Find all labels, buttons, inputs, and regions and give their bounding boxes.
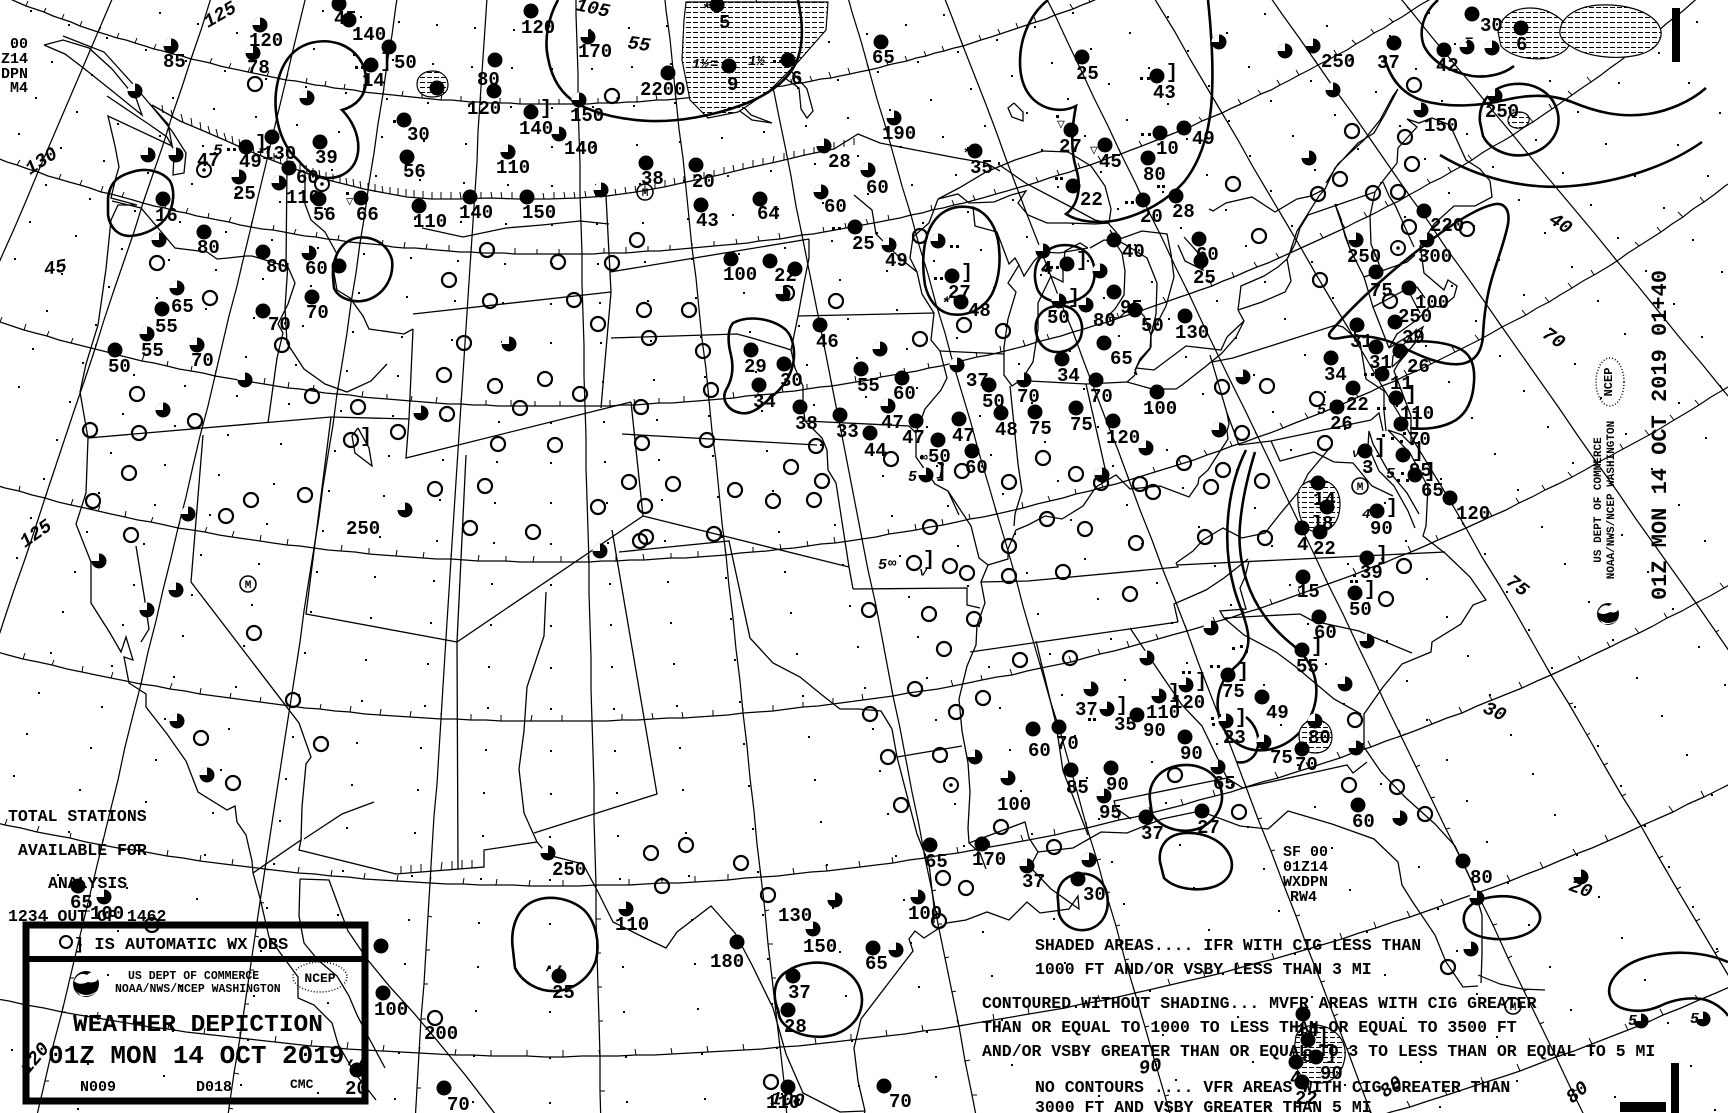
svg-text:20: 20 bbox=[692, 171, 715, 193]
svg-text:48: 48 bbox=[995, 419, 1018, 441]
svg-text:01Z MON 14 OCT 2019 01+40: 01Z MON 14 OCT 2019 01+40 bbox=[1648, 270, 1673, 600]
svg-text:70: 70 bbox=[191, 350, 214, 372]
svg-text:5: 5 bbox=[719, 12, 730, 34]
svg-text:60: 60 bbox=[824, 196, 847, 218]
svg-text:▽: ▽ bbox=[1057, 117, 1065, 132]
svg-text:70: 70 bbox=[1017, 386, 1040, 408]
svg-text:56: 56 bbox=[313, 204, 336, 226]
svg-text:M: M bbox=[245, 580, 252, 592]
svg-text:250: 250 bbox=[1321, 51, 1355, 73]
svg-text:50: 50 bbox=[108, 356, 131, 378]
svg-text:46: 46 bbox=[816, 331, 839, 353]
svg-text:90: 90 bbox=[1370, 518, 1393, 540]
svg-text:01Z MON 14 OCT 2019: 01Z MON 14 OCT 2019 bbox=[48, 1041, 344, 1071]
svg-text:65: 65 bbox=[865, 953, 888, 975]
svg-text:64: 64 bbox=[757, 203, 780, 225]
svg-text:=: = bbox=[710, 57, 718, 73]
svg-text:75: 75 bbox=[1029, 418, 1052, 440]
svg-text:60: 60 bbox=[965, 457, 988, 479]
svg-text:]: ] bbox=[1195, 671, 1207, 694]
svg-text:5: 5 bbox=[1317, 402, 1326, 419]
svg-text:55: 55 bbox=[1296, 656, 1319, 678]
svg-text:9: 9 bbox=[727, 74, 738, 96]
svg-text:170: 170 bbox=[578, 41, 612, 63]
svg-text:35: 35 bbox=[970, 157, 993, 179]
svg-text:10: 10 bbox=[1156, 138, 1179, 160]
svg-text:75: 75 bbox=[1222, 681, 1245, 703]
svg-text:38: 38 bbox=[641, 168, 664, 190]
svg-text:60: 60 bbox=[893, 383, 916, 405]
svg-text:5: 5 bbox=[213, 142, 223, 160]
svg-text:44: 44 bbox=[864, 440, 887, 462]
svg-text:190: 190 bbox=[882, 123, 916, 145]
svg-text:1½: 1½ bbox=[748, 54, 765, 70]
svg-text:]: ] bbox=[1386, 497, 1398, 520]
svg-text:23: 23 bbox=[1223, 727, 1246, 749]
svg-text:5: 5 bbox=[1386, 466, 1395, 483]
svg-text:39: 39 bbox=[315, 147, 338, 169]
svg-text:140: 140 bbox=[519, 118, 553, 140]
svg-text:45: 45 bbox=[42, 255, 69, 281]
svg-text:100: 100 bbox=[770, 1088, 806, 1112]
svg-text:]: ] bbox=[380, 51, 392, 74]
svg-text:6: 6 bbox=[1516, 34, 1527, 56]
svg-text:CONTOURED WITHOUT SHADING... M: CONTOURED WITHOUT SHADING... MVFR AREAS … bbox=[982, 994, 1537, 1013]
svg-text:80: 80 bbox=[1143, 164, 1166, 186]
svg-text:]: ] bbox=[1311, 636, 1323, 659]
svg-text:30: 30 bbox=[1083, 884, 1106, 906]
svg-text:70: 70 bbox=[1090, 386, 1113, 408]
svg-text:50: 50 bbox=[1141, 315, 1164, 337]
svg-text:150: 150 bbox=[803, 936, 837, 958]
svg-text:ν: ν bbox=[1352, 447, 1359, 461]
svg-text:33: 33 bbox=[836, 421, 859, 443]
svg-text:42: 42 bbox=[1436, 55, 1459, 77]
svg-text:43: 43 bbox=[696, 210, 719, 232]
svg-text:]: ] bbox=[1364, 579, 1376, 602]
svg-text:120: 120 bbox=[521, 17, 555, 39]
svg-text:70: 70 bbox=[1295, 754, 1318, 776]
svg-text:70: 70 bbox=[447, 1094, 470, 1113]
svg-text:37: 37 bbox=[1022, 871, 1045, 893]
svg-text:140: 140 bbox=[459, 202, 493, 224]
svg-text:49: 49 bbox=[885, 250, 908, 272]
svg-text:]: ] bbox=[1412, 441, 1424, 464]
svg-text:8: 8 bbox=[1322, 513, 1333, 535]
svg-text:3: 3 bbox=[1362, 457, 1373, 479]
svg-text:**: ** bbox=[701, 1, 720, 19]
svg-text:34: 34 bbox=[1324, 364, 1347, 386]
svg-text:US DEPT OF COMMERCE: US DEPT OF COMMERCE bbox=[128, 970, 259, 983]
svg-text:49: 49 bbox=[1192, 128, 1215, 150]
svg-text:34: 34 bbox=[1057, 365, 1080, 387]
svg-text:4: 4 bbox=[1362, 507, 1370, 523]
svg-text:]: ] bbox=[1237, 661, 1249, 684]
svg-text:31: 31 bbox=[1350, 331, 1373, 353]
svg-text:NO CONTOURS .... VFR AREAS WIT: NO CONTOURS .... VFR AREAS WITH CIG GREA… bbox=[1035, 1078, 1510, 1097]
svg-text:75: 75 bbox=[1370, 280, 1393, 302]
svg-text:56: 56 bbox=[403, 161, 426, 183]
svg-text:25: 25 bbox=[233, 183, 256, 205]
svg-text:80: 80 bbox=[477, 69, 500, 91]
svg-text:60: 60 bbox=[1028, 740, 1051, 762]
svg-text:47: 47 bbox=[881, 412, 904, 434]
svg-text:40: 40 bbox=[1122, 241, 1145, 263]
svg-text:180: 180 bbox=[710, 951, 744, 973]
svg-text:39: 39 bbox=[1402, 327, 1425, 349]
svg-text:140: 140 bbox=[564, 138, 598, 160]
svg-text:250: 250 bbox=[1347, 246, 1381, 268]
svg-text:80: 80 bbox=[266, 256, 289, 278]
svg-text:AND/OR VSBY GREATER THAN OR EQ: AND/OR VSBY GREATER THAN OR EQUAL TO 3 T… bbox=[982, 1042, 1655, 1061]
svg-text:110: 110 bbox=[413, 211, 447, 233]
svg-text:70: 70 bbox=[268, 314, 291, 336]
svg-text:120: 120 bbox=[1106, 427, 1140, 449]
svg-text:]: ] bbox=[1424, 461, 1436, 484]
svg-text:100: 100 bbox=[1143, 398, 1177, 420]
svg-text:47: 47 bbox=[952, 425, 975, 447]
svg-text:95: 95 bbox=[1120, 297, 1143, 319]
svg-text:NOAA/NWS/NCEP WASHINGTON: NOAA/NWS/NCEP WASHINGTON bbox=[115, 983, 281, 996]
svg-text:65: 65 bbox=[171, 296, 194, 318]
svg-text:RW4: RW4 bbox=[1290, 889, 1317, 906]
svg-text:25: 25 bbox=[552, 982, 575, 1004]
svg-text:75: 75 bbox=[1070, 414, 1093, 436]
svg-text:5: 5 bbox=[908, 469, 917, 486]
svg-text:85: 85 bbox=[163, 51, 186, 73]
svg-text:SHADED AREAS.... IFR WITH CIG: SHADED AREAS.... IFR WITH CIG LESS THAN bbox=[1035, 936, 1421, 955]
svg-text:78: 78 bbox=[247, 57, 270, 79]
svg-text:55: 55 bbox=[141, 340, 164, 362]
svg-text:D018: D018 bbox=[196, 1079, 232, 1096]
svg-text:N009: N009 bbox=[80, 1079, 116, 1096]
svg-text:55: 55 bbox=[626, 32, 652, 57]
svg-text:25: 25 bbox=[1193, 267, 1216, 289]
svg-text:30: 30 bbox=[407, 124, 430, 146]
svg-text:90: 90 bbox=[1180, 743, 1203, 765]
svg-text:90: 90 bbox=[1137, 1054, 1163, 1080]
svg-text:27: 27 bbox=[1059, 136, 1082, 158]
svg-text:∞: ∞ bbox=[888, 556, 897, 572]
svg-text:100: 100 bbox=[908, 903, 942, 925]
svg-text:60: 60 bbox=[1196, 244, 1219, 266]
svg-text:]: ] bbox=[936, 462, 946, 480]
svg-text:47: 47 bbox=[902, 427, 925, 449]
svg-text:]: ] bbox=[1374, 437, 1386, 460]
svg-text:29: 29 bbox=[744, 356, 767, 378]
svg-text:70: 70 bbox=[1056, 733, 1079, 755]
svg-text:130: 130 bbox=[778, 905, 812, 927]
svg-text:]: ] bbox=[540, 98, 552, 121]
svg-text:M: M bbox=[1357, 482, 1364, 494]
svg-text:25: 25 bbox=[1076, 63, 1099, 85]
svg-text:100: 100 bbox=[723, 264, 757, 286]
svg-text:M4: M4 bbox=[10, 80, 28, 97]
svg-text:140: 140 bbox=[352, 24, 386, 46]
svg-text:60: 60 bbox=[1352, 811, 1375, 833]
svg-text:▽: ▽ bbox=[1090, 143, 1098, 158]
svg-text:130: 130 bbox=[1175, 322, 1209, 344]
svg-text:38: 38 bbox=[795, 413, 818, 435]
svg-text:25: 25 bbox=[852, 233, 875, 255]
svg-text:ANALYSIS: ANALYSIS bbox=[48, 874, 127, 893]
svg-text:*: * bbox=[962, 146, 971, 163]
svg-text:22: 22 bbox=[1080, 189, 1103, 211]
svg-text:]: ] bbox=[1076, 250, 1088, 273]
svg-text:]: ] bbox=[1410, 410, 1422, 433]
svg-text:6: 6 bbox=[791, 68, 802, 90]
svg-text:100: 100 bbox=[997, 794, 1031, 816]
svg-text:4: 4 bbox=[1297, 534, 1308, 556]
svg-text:]: ] bbox=[360, 426, 372, 449]
svg-text:43: 43 bbox=[1153, 82, 1176, 104]
svg-text:85: 85 bbox=[1066, 777, 1089, 799]
svg-text:120: 120 bbox=[1456, 503, 1490, 525]
svg-text:34: 34 bbox=[753, 391, 776, 413]
svg-text:] IS AUTOMATIC WX OBS: ] IS AUTOMATIC WX OBS bbox=[74, 936, 288, 955]
svg-text:65: 65 bbox=[1213, 773, 1236, 795]
svg-text:50: 50 bbox=[1047, 307, 1070, 329]
svg-text:300: 300 bbox=[1418, 246, 1452, 268]
svg-text:]: ] bbox=[1376, 544, 1388, 567]
svg-text:WEATHER DEPICTION: WEATHER DEPICTION bbox=[73, 1012, 323, 1039]
svg-text:80: 80 bbox=[197, 237, 220, 259]
svg-text:150: 150 bbox=[1424, 115, 1458, 137]
svg-text:37: 37 bbox=[1377, 52, 1400, 74]
svg-text:75: 75 bbox=[1270, 747, 1293, 769]
svg-text:100: 100 bbox=[374, 999, 408, 1021]
svg-text:90: 90 bbox=[1106, 774, 1129, 796]
svg-text:NCEP: NCEP bbox=[304, 971, 335, 986]
svg-text:4: 4 bbox=[1041, 261, 1049, 277]
svg-text:49: 49 bbox=[1266, 702, 1289, 724]
svg-text:120: 120 bbox=[1171, 692, 1205, 714]
svg-text:70: 70 bbox=[306, 302, 329, 324]
svg-text:37: 37 bbox=[1141, 823, 1164, 845]
svg-text:80: 80 bbox=[1093, 310, 1116, 332]
svg-text:CMC: CMC bbox=[290, 1077, 314, 1092]
svg-text:37: 37 bbox=[966, 370, 989, 392]
svg-text:55: 55 bbox=[857, 375, 880, 397]
svg-text:110: 110 bbox=[496, 157, 530, 179]
svg-text:5: 5 bbox=[1690, 1011, 1699, 1028]
svg-text:60: 60 bbox=[296, 167, 319, 189]
svg-text:=: = bbox=[1465, 34, 1473, 50]
svg-text:**: ** bbox=[941, 295, 960, 313]
svg-text:]: ] bbox=[1166, 62, 1178, 85]
svg-text:80: 80 bbox=[1308, 727, 1331, 749]
svg-text:NOAA/NWS/NCEP WASHINGTON: NOAA/NWS/NCEP WASHINGTON bbox=[1606, 421, 1618, 579]
svg-text:250: 250 bbox=[552, 859, 586, 881]
svg-text:50: 50 bbox=[1349, 599, 1372, 621]
svg-text:37: 37 bbox=[788, 982, 811, 1004]
svg-text:37: 37 bbox=[1075, 699, 1098, 721]
svg-text:120: 120 bbox=[249, 30, 283, 52]
svg-text:65: 65 bbox=[1110, 348, 1133, 370]
svg-text:▽: ▽ bbox=[346, 195, 354, 209]
svg-text:˅: ˅ bbox=[919, 566, 928, 581]
svg-text:]: ] bbox=[1235, 707, 1247, 730]
svg-text:220: 220 bbox=[1430, 215, 1464, 237]
svg-text:3000 FT AND VSBY GREATER THAN: 3000 FT AND VSBY GREATER THAN 5 MI bbox=[1035, 1098, 1372, 1113]
svg-text:1000 FT AND/OR VSBY LESS THAN: 1000 FT AND/OR VSBY LESS THAN 3 MI bbox=[1035, 960, 1372, 979]
svg-text:AVAILABLE FOR: AVAILABLE FOR bbox=[18, 841, 147, 860]
svg-text:95: 95 bbox=[1099, 802, 1122, 824]
svg-text:TOTAL STATIONS: TOTAL STATIONS bbox=[8, 807, 147, 826]
svg-text:120: 120 bbox=[467, 98, 501, 120]
svg-text:27: 27 bbox=[1197, 817, 1220, 839]
svg-text:30: 30 bbox=[780, 370, 803, 392]
svg-text:20: 20 bbox=[1140, 206, 1163, 228]
svg-text:∞: ∞ bbox=[920, 450, 928, 465]
svg-text:65: 65 bbox=[925, 851, 948, 873]
svg-text:50: 50 bbox=[982, 391, 1005, 413]
svg-text:250: 250 bbox=[1398, 306, 1432, 328]
svg-text:31: 31 bbox=[1369, 352, 1392, 374]
svg-text:250: 250 bbox=[346, 518, 380, 540]
svg-text:]: ] bbox=[1068, 287, 1080, 310]
svg-text:70: 70 bbox=[889, 1091, 912, 1113]
svg-text:’’: ’’ bbox=[542, 965, 564, 985]
svg-text:16: 16 bbox=[155, 205, 178, 227]
svg-text:45: 45 bbox=[1099, 151, 1122, 173]
svg-text:5: 5 bbox=[878, 557, 887, 574]
svg-text:2200: 2200 bbox=[640, 79, 686, 101]
svg-text:]: ] bbox=[1405, 384, 1417, 407]
svg-text:]: ] bbox=[1116, 695, 1128, 718]
svg-text:60: 60 bbox=[866, 177, 889, 199]
svg-text:170: 170 bbox=[972, 849, 1006, 871]
svg-text:130: 130 bbox=[262, 143, 296, 165]
svg-text:28: 28 bbox=[1172, 201, 1195, 223]
svg-text:110: 110 bbox=[615, 914, 649, 936]
svg-text:NCEP: NCEP bbox=[1602, 368, 1616, 397]
svg-text:]: ] bbox=[961, 262, 973, 285]
svg-text:26: 26 bbox=[1330, 413, 1353, 435]
svg-text:]: ] bbox=[1311, 514, 1323, 537]
svg-text:55: 55 bbox=[155, 316, 178, 338]
svg-text:60: 60 bbox=[305, 258, 328, 280]
svg-text:5: 5 bbox=[1628, 1013, 1637, 1030]
svg-text:66: 66 bbox=[356, 204, 379, 226]
svg-text:80: 80 bbox=[1470, 867, 1493, 889]
svg-text:150: 150 bbox=[522, 202, 556, 224]
svg-text:14: 14 bbox=[1313, 489, 1336, 511]
svg-text:28: 28 bbox=[828, 151, 851, 173]
svg-text:200: 200 bbox=[424, 1023, 458, 1045]
svg-text:48: 48 bbox=[968, 300, 991, 322]
svg-text:1½: 1½ bbox=[692, 57, 709, 73]
svg-text:65: 65 bbox=[872, 47, 895, 69]
svg-text:50: 50 bbox=[394, 52, 417, 74]
svg-text:150: 150 bbox=[570, 105, 604, 127]
svg-text:THAN OR EQUAL TO 1000 TO LESS: THAN OR EQUAL TO 1000 TO LESS THAN OR EQ… bbox=[982, 1018, 1517, 1037]
svg-text:US DEPT OF COMMERCE: US DEPT OF COMMERCE bbox=[1593, 437, 1605, 563]
svg-text:22: 22 bbox=[1313, 538, 1336, 560]
svg-text:28: 28 bbox=[784, 1016, 807, 1038]
svg-text:15: 15 bbox=[1297, 581, 1320, 603]
svg-text:30: 30 bbox=[1480, 15, 1503, 37]
svg-text:250: 250 bbox=[1485, 101, 1519, 123]
svg-text:22: 22 bbox=[774, 265, 797, 287]
